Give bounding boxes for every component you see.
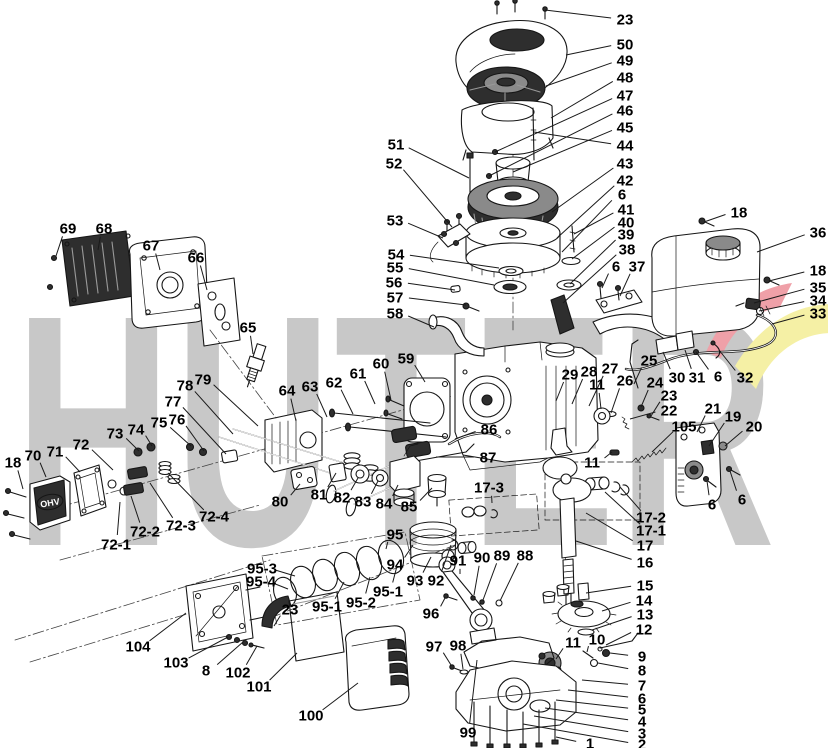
callout-66: 66 bbox=[188, 250, 205, 267]
leader-line-8 bbox=[598, 663, 628, 669]
callout-88: 88 bbox=[517, 548, 534, 565]
leader-line-101 bbox=[270, 653, 297, 680]
callout-73: 73 bbox=[107, 426, 124, 443]
callout-93: 93 bbox=[407, 573, 424, 590]
callout-72: 72 bbox=[73, 437, 90, 454]
callout-85: 85 bbox=[401, 499, 418, 516]
callout-18: 18 bbox=[5, 455, 22, 472]
callout-12: 12 bbox=[636, 622, 653, 639]
callout-83: 83 bbox=[355, 494, 372, 511]
leader-line-97 bbox=[443, 653, 451, 665]
callout-86: 86 bbox=[481, 422, 498, 439]
callout-92: 92 bbox=[428, 573, 445, 590]
callout-23: 23 bbox=[282, 602, 299, 619]
callout-80: 80 bbox=[272, 494, 289, 511]
callout-76: 76 bbox=[169, 412, 186, 429]
callout-17-3: 17-3 bbox=[474, 480, 504, 497]
callout-33: 33 bbox=[810, 306, 827, 323]
callout-87: 87 bbox=[480, 450, 497, 467]
callout-95-1: 95-1 bbox=[312, 599, 342, 616]
callout-1: 1 bbox=[586, 736, 594, 748]
callout-38: 38 bbox=[619, 242, 636, 259]
leader-line-23 bbox=[545, 10, 611, 18]
callout-53: 53 bbox=[387, 213, 404, 230]
callout-74: 74 bbox=[128, 422, 145, 439]
callout-96: 96 bbox=[423, 606, 440, 623]
leader-line-42 bbox=[557, 186, 614, 238]
callout-37: 37 bbox=[629, 259, 646, 276]
callout-16: 16 bbox=[637, 555, 654, 572]
callout-67: 67 bbox=[143, 238, 160, 255]
callout-97: 97 bbox=[426, 639, 443, 656]
callout-18: 18 bbox=[810, 263, 827, 280]
callout-10: 10 bbox=[589, 632, 606, 649]
callout-8: 8 bbox=[202, 663, 210, 680]
callout-11: 11 bbox=[584, 455, 600, 472]
leader-line-98 bbox=[461, 654, 463, 669]
leader-line-52 bbox=[403, 170, 452, 227]
callout-95-4: 95-4 bbox=[246, 574, 277, 591]
callout-48: 48 bbox=[617, 70, 634, 87]
callout-23: 23 bbox=[617, 12, 634, 29]
callout-22: 22 bbox=[661, 403, 678, 420]
callout-6: 6 bbox=[738, 492, 746, 509]
leader-line-43 bbox=[552, 168, 613, 212]
callout-11: 11 bbox=[589, 377, 605, 394]
callout-95-1: 95-1 bbox=[373, 584, 403, 601]
callout-77: 77 bbox=[165, 394, 182, 411]
leader-line-50 bbox=[566, 46, 611, 55]
callout-6: 6 bbox=[708, 497, 716, 514]
callout-20: 20 bbox=[746, 419, 763, 436]
callout-95: 95 bbox=[387, 527, 404, 544]
callout-31: 31 bbox=[689, 370, 706, 387]
callout-32: 32 bbox=[737, 370, 754, 387]
leader-line-53 bbox=[408, 223, 443, 238]
callout-69: 69 bbox=[60, 221, 77, 238]
callout-100: 100 bbox=[298, 708, 323, 725]
callout-95-2: 95-2 bbox=[346, 595, 376, 612]
callout-104: 104 bbox=[125, 639, 151, 656]
callout-44: 44 bbox=[617, 138, 634, 155]
callout-105: 105 bbox=[671, 419, 696, 436]
diagram-canvas: HUTER bbox=[0, 0, 828, 748]
callout-78: 78 bbox=[177, 378, 194, 395]
leader-line-6 bbox=[568, 690, 628, 697]
callout-2: 2 bbox=[638, 737, 646, 748]
callout-11: 11 bbox=[565, 635, 581, 652]
callout-43: 43 bbox=[617, 156, 634, 173]
callout-65: 65 bbox=[240, 320, 257, 337]
callout-59: 59 bbox=[398, 351, 415, 368]
callout-91: 91 bbox=[450, 553, 467, 570]
callout-81: 81 bbox=[311, 487, 328, 504]
callout-72-3: 72-3 bbox=[166, 518, 196, 535]
callout-75: 75 bbox=[151, 415, 168, 432]
callout-26: 26 bbox=[617, 373, 634, 390]
callout-101: 101 bbox=[246, 679, 271, 696]
leader-line-18 bbox=[704, 215, 726, 223]
callout-103: 103 bbox=[163, 655, 188, 672]
callout-17: 17 bbox=[637, 538, 654, 555]
leader-line-9 bbox=[610, 653, 628, 655]
leader-line-41 bbox=[574, 213, 613, 234]
leader-line-7 bbox=[582, 680, 628, 684]
callout-58: 58 bbox=[387, 306, 404, 323]
callout-21: 21 bbox=[705, 401, 722, 418]
callout-29: 29 bbox=[562, 367, 579, 384]
callout-51: 51 bbox=[388, 137, 405, 154]
callout-99: 99 bbox=[460, 725, 477, 742]
callout-84: 84 bbox=[376, 496, 393, 513]
callout-68: 68 bbox=[96, 221, 113, 238]
callout-64: 64 bbox=[279, 383, 296, 400]
exploded-parts-diagram: HUTER bbox=[0, 0, 828, 748]
callout-18: 18 bbox=[731, 205, 748, 222]
callout-57: 57 bbox=[387, 290, 404, 307]
callout-79: 79 bbox=[195, 372, 212, 389]
callout-45: 45 bbox=[617, 120, 634, 137]
callout-19: 19 bbox=[725, 409, 742, 426]
callout-72-2: 72-2 bbox=[130, 524, 160, 541]
leader-line-104 bbox=[150, 613, 187, 641]
callout-82: 82 bbox=[334, 490, 351, 507]
callout-6: 6 bbox=[714, 369, 722, 386]
callout-71: 71 bbox=[47, 444, 64, 461]
callout-98: 98 bbox=[450, 638, 467, 655]
callout-72-4: 72-4 bbox=[199, 509, 230, 526]
callout-70: 70 bbox=[25, 448, 42, 465]
callout-52: 52 bbox=[386, 156, 403, 173]
leader-line-36 bbox=[757, 235, 805, 252]
callout-30: 30 bbox=[669, 370, 686, 387]
callout-60: 60 bbox=[373, 356, 390, 373]
callout-50: 50 bbox=[617, 37, 634, 54]
callout-36: 36 bbox=[810, 225, 827, 242]
callout-63: 63 bbox=[302, 379, 319, 396]
callout-62: 62 bbox=[326, 375, 343, 392]
callout-46: 46 bbox=[617, 103, 634, 120]
leader-line-12 bbox=[606, 633, 631, 646]
callout-89: 89 bbox=[494, 548, 511, 565]
callout-61: 61 bbox=[350, 366, 367, 383]
callout-25: 25 bbox=[641, 353, 658, 370]
leader-line-51 bbox=[409, 148, 469, 178]
callout-49: 49 bbox=[617, 53, 634, 70]
callout-90: 90 bbox=[474, 550, 491, 567]
leader-line-102 bbox=[246, 646, 257, 665]
leader-line-1 bbox=[556, 737, 576, 741]
callout-72-1: 72-1 bbox=[101, 537, 131, 554]
callout-6: 6 bbox=[612, 259, 620, 276]
